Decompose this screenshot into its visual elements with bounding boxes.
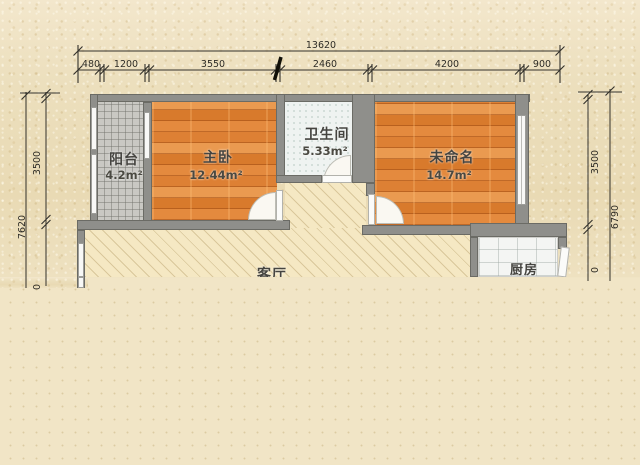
dim-top-seg-1200: 1200 [114, 59, 138, 70]
floor-plan-page: { "plan": { "type": "apartment-floor-pla… [0, 0, 640, 465]
dim-left-inner: 3500 [32, 151, 43, 175]
dim-top-seg-900: 900 [533, 59, 551, 70]
dim-left-partial: 0 [32, 284, 43, 290]
dim-right-outer: 6790 [610, 205, 621, 229]
dim-top-seg-4200: 4200 [435, 59, 459, 70]
dim-left-outer: 7620 [17, 215, 28, 239]
dim-top-seg-480: 480 [82, 59, 100, 70]
tick-marks [20, 45, 622, 234]
dim-top-total: 13620 [306, 40, 336, 51]
dim-top-seg-3550: 3550 [201, 59, 225, 70]
dim-right-partial: 0 [590, 267, 601, 273]
dim-top-seg-2460: 2460 [313, 59, 337, 70]
dimension-lines: 13620 480 1200 3550 2460 4200 900 3500 7… [0, 0, 640, 465]
dim-right-inner: 3500 [590, 150, 601, 174]
